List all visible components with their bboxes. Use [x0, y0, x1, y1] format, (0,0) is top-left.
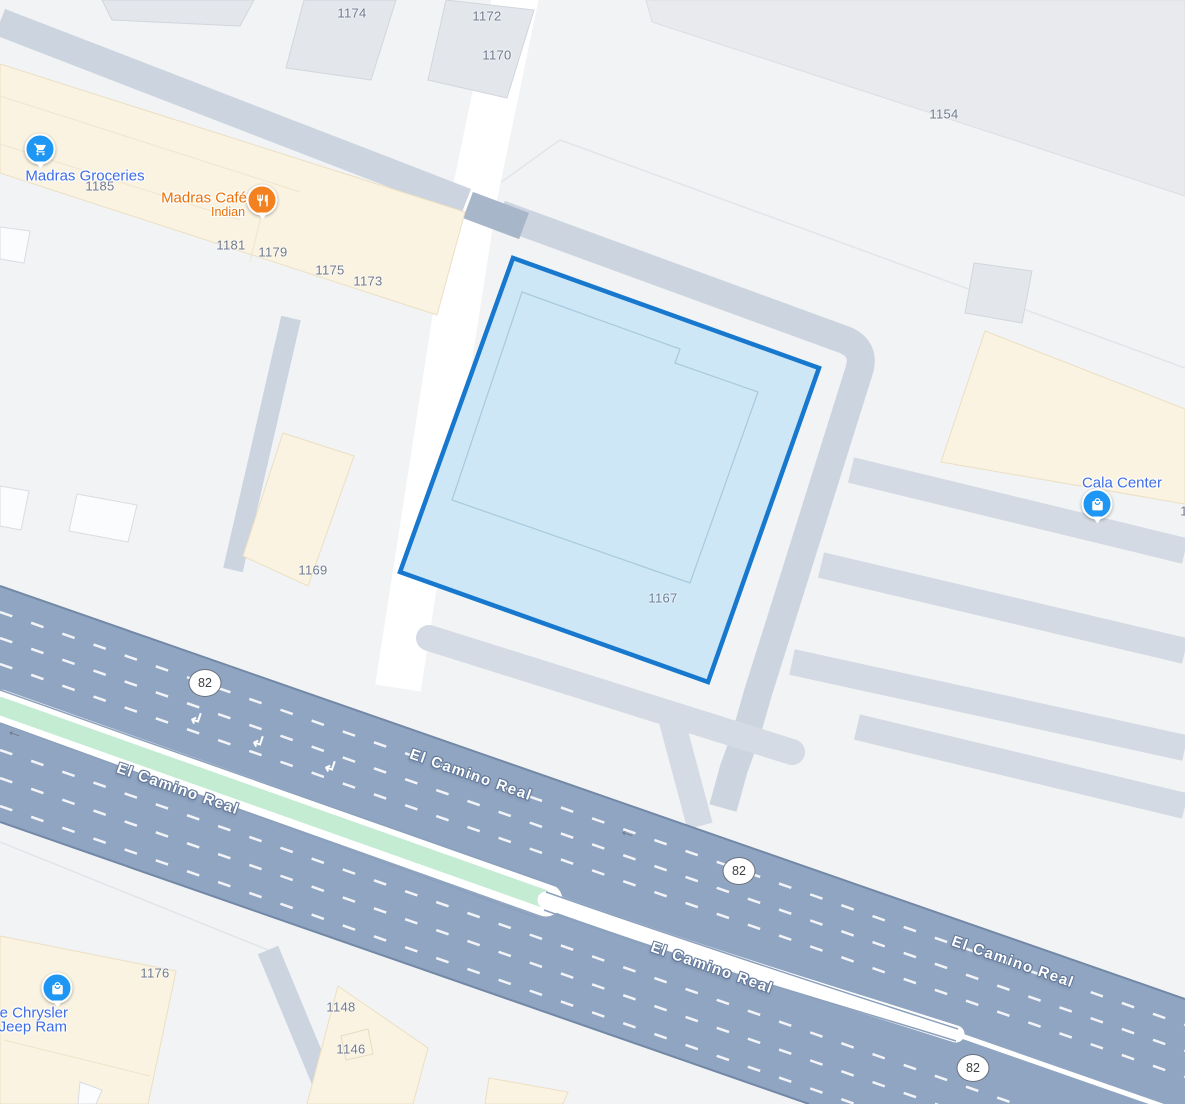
dealer-pin[interactable] — [42, 973, 73, 1004]
madras-cafe-label[interactable]: Madras Café — [161, 190, 247, 207]
parcel-label-1176: 1176 — [140, 966, 169, 981]
parcel-label-1173: 1173 — [353, 274, 382, 289]
shopping-bag-icon — [1090, 497, 1104, 511]
parcel-label-1175: 1175 — [315, 263, 344, 278]
parcel-label-1169: 1169 — [298, 563, 327, 578]
madras-groceries-label[interactable]: Madras Groceries — [25, 168, 144, 185]
shopping-bag-icon — [50, 981, 64, 995]
parcel-label-1179: 1179 — [258, 245, 287, 260]
parcel-label-1154: 1154 — [929, 107, 958, 122]
madras-cafe-pin[interactable] — [247, 185, 278, 216]
route-82-shield: 82 — [189, 669, 222, 697]
parcel-label-1146: 1146 — [336, 1042, 365, 1057]
parcel-label-clipped: 1 — [1180, 504, 1185, 519]
madras-cafe-category: Indian — [211, 205, 245, 219]
shopping-cart-icon — [33, 142, 47, 156]
route-82-shield: 82 — [957, 1054, 990, 1082]
map-viewport[interactable]: 1174 1172 1170 1154 1185 1181 1179 1175 … — [0, 0, 1185, 1104]
parcel-label-1174: 1174 — [337, 6, 366, 21]
fork-knife-icon — [255, 193, 269, 207]
map-canvas[interactable] — [0, 0, 1185, 1104]
parcel-label-1181: 1181 — [216, 238, 245, 253]
route-82-shield: 82 — [723, 857, 756, 885]
parcel-label-1170: 1170 — [482, 48, 511, 63]
cala-center-label[interactable]: Cala Center — [1082, 475, 1162, 492]
parcel-label-1148: 1148 — [326, 1000, 355, 1015]
cala-center-pin[interactable] — [1082, 489, 1113, 520]
dealer-label-line2[interactable]: e Jeep Ram — [0, 1020, 67, 1034]
parcel-label-1172: 1172 — [472, 9, 501, 24]
selected-parcel-number: 1167 — [648, 591, 677, 606]
madras-groceries-pin[interactable] — [25, 134, 56, 165]
